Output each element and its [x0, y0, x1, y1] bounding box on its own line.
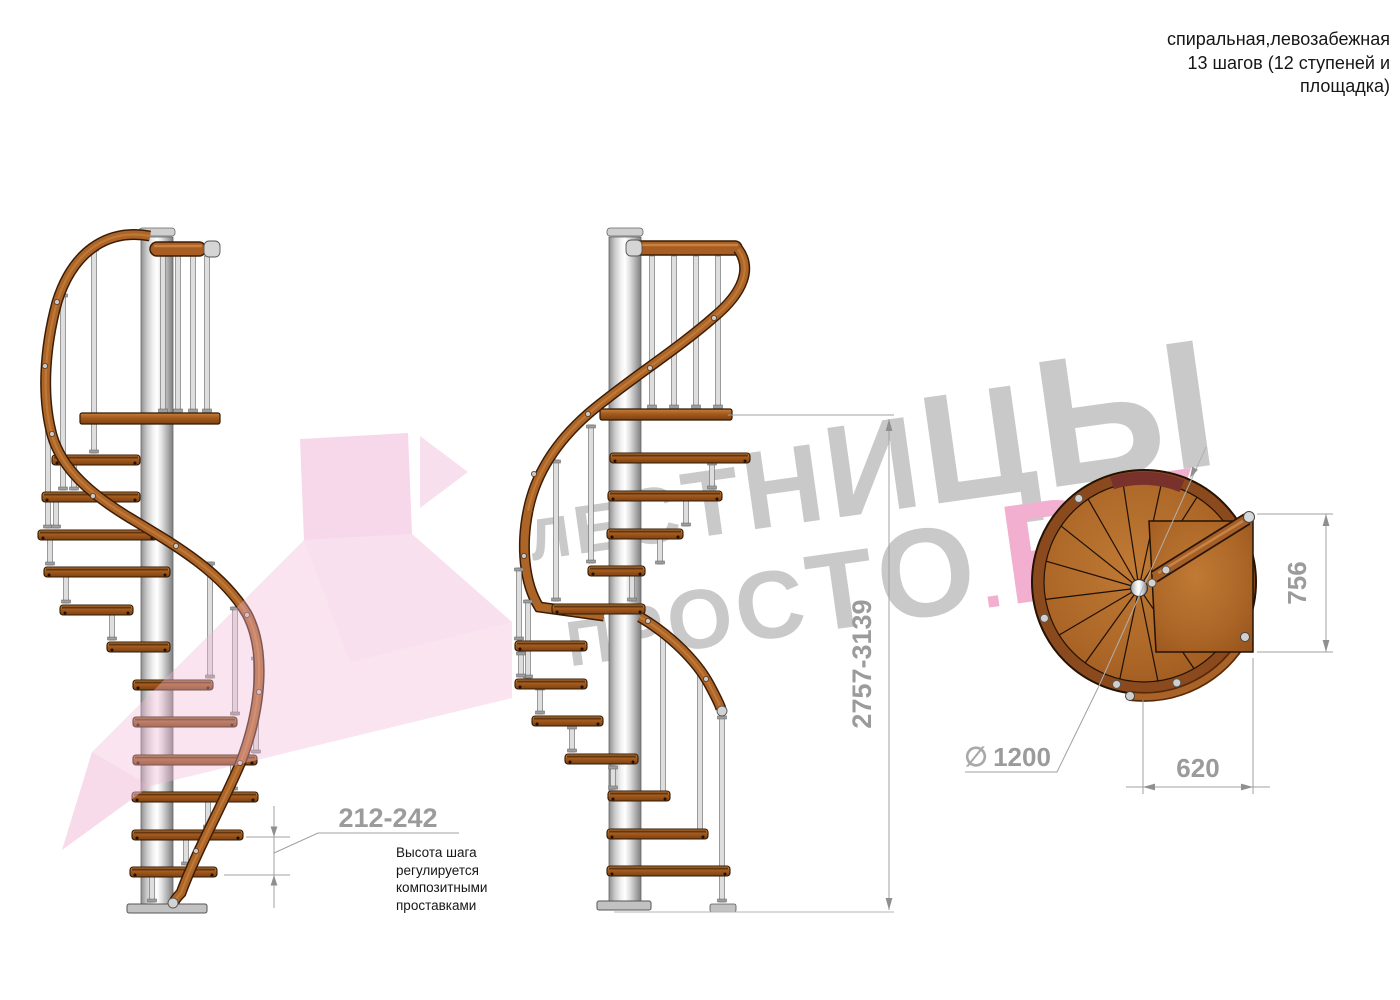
step-bolt	[134, 499, 137, 502]
step-bolt	[569, 761, 572, 764]
baluster	[684, 498, 689, 526]
baluster-flange	[587, 425, 596, 428]
step-bolt	[536, 723, 539, 726]
rail-connector	[173, 543, 178, 548]
step-bolt	[136, 799, 139, 802]
arrowhead	[1323, 514, 1330, 526]
step-bolt	[46, 499, 49, 502]
baluster-flange	[46, 562, 55, 565]
handrail-end-cap	[168, 898, 178, 908]
baluster-flange	[517, 652, 526, 655]
step-bolt	[556, 611, 559, 614]
step-bolt	[48, 574, 51, 577]
step-bolt	[677, 536, 680, 539]
baluster-flange	[70, 487, 79, 490]
step-bolt	[64, 612, 67, 615]
rail-connector	[711, 315, 716, 320]
baluster-flange	[44, 525, 53, 528]
handrail-end-cap	[717, 706, 727, 716]
step-bolt	[592, 573, 595, 576]
rail-connector	[193, 848, 198, 853]
title-line: спиральная,левозабежная	[1167, 28, 1390, 52]
note-line: регулируется	[396, 862, 487, 880]
step-bolt	[612, 498, 615, 501]
handrail-outline	[640, 617, 721, 709]
step-bolt	[56, 462, 59, 465]
step-bolt	[632, 761, 635, 764]
baluster-flange	[718, 899, 727, 902]
arrowhead	[886, 898, 893, 910]
arrowhead	[1323, 640, 1330, 652]
baluster	[570, 726, 575, 752]
rail-connector	[585, 411, 590, 416]
platform-step	[600, 409, 732, 420]
rail-connector	[42, 363, 47, 368]
baluster-flange	[568, 749, 577, 752]
baluster	[538, 687, 543, 714]
handrail-end-cap	[204, 241, 220, 257]
baluster-flange	[609, 766, 618, 769]
title-line: площадка)	[1167, 75, 1390, 99]
platform-handrail	[630, 241, 742, 255]
railing-baluster	[672, 256, 677, 409]
baluster	[517, 568, 522, 640]
baluster	[710, 462, 715, 489]
handrail-sleeve	[1162, 566, 1170, 574]
step-bolt	[134, 874, 137, 877]
step-bolt	[137, 687, 140, 690]
baluster-flange	[552, 598, 561, 601]
step-bolt	[744, 460, 747, 463]
baluster-flange	[515, 637, 524, 640]
step-bolt	[111, 649, 114, 652]
baluster	[661, 632, 666, 797]
rim-baluster-dot	[1113, 680, 1121, 688]
step-bolt	[597, 723, 600, 726]
baluster	[554, 460, 559, 601]
baluster-flange	[52, 525, 61, 528]
baluster	[698, 667, 703, 835]
baluster	[526, 600, 531, 678]
note-line: Высота шага	[396, 844, 487, 862]
baluster-flange	[708, 486, 717, 489]
step-bolt	[611, 536, 614, 539]
step-bolt	[164, 574, 167, 577]
platform-step	[80, 413, 220, 424]
railing-baluster	[161, 256, 166, 413]
step-bolt	[519, 686, 522, 689]
step-bolt	[639, 573, 642, 576]
baluster-flange	[62, 600, 71, 603]
step-bolt	[611, 873, 614, 876]
step-bolt	[716, 498, 719, 501]
rail-connector	[49, 431, 54, 436]
arrowhead	[886, 419, 893, 431]
baluster-joint	[1126, 692, 1135, 701]
baluster-flange	[718, 716, 727, 719]
baluster-flange	[524, 600, 533, 603]
step-bolt	[664, 798, 667, 801]
left-staircase-view	[38, 228, 262, 913]
step-bolt	[164, 649, 167, 652]
baluster-flange	[587, 560, 596, 563]
arrowhead	[1143, 784, 1155, 791]
baluster-flange	[536, 711, 545, 714]
step-bolt	[134, 462, 137, 465]
step-bolt	[519, 648, 522, 651]
baluster-flange	[515, 568, 524, 571]
middle-staircase-view	[515, 228, 751, 912]
base-plate	[127, 904, 207, 913]
platform-handrail	[150, 242, 206, 256]
baluster	[611, 766, 616, 789]
step-bolt	[724, 873, 727, 876]
rail-connector	[647, 365, 652, 370]
title-line: 13 шагов (12 ступеней и	[1167, 52, 1390, 76]
step-bolt	[581, 648, 584, 651]
pole-bracket	[1148, 579, 1156, 587]
rail-connector	[90, 493, 95, 498]
step-bolt	[211, 874, 214, 877]
railing-baluster	[716, 256, 721, 409]
arrowhead	[271, 875, 278, 886]
step-bolt	[612, 798, 615, 801]
base-plate	[597, 901, 651, 910]
railing-baluster	[176, 256, 181, 413]
rail-connector	[703, 676, 708, 681]
baluster	[519, 652, 524, 677]
step-bolt	[42, 537, 45, 540]
handrail-end-cap	[1244, 512, 1255, 523]
step-height-label: 212-242	[338, 803, 437, 833]
rail-connector	[531, 471, 536, 476]
step-bolt	[702, 836, 705, 839]
baluster-flange	[59, 487, 68, 490]
railing-baluster	[191, 256, 196, 413]
note-line: проставками	[396, 897, 487, 915]
baluster-flange	[148, 899, 157, 902]
drawing-title: спиральная,левозабежная 13 шагов (12 сту…	[1167, 28, 1390, 99]
handrail-end-cap	[626, 240, 642, 256]
baluster-flange	[682, 523, 691, 526]
baluster-joint	[1241, 633, 1250, 642]
rim-baluster-dot	[1173, 679, 1181, 687]
step-bolt	[581, 686, 584, 689]
drawing-canvas: ЛЕСТНИЦЫ ПРОСТО.РУ	[0, 0, 1400, 1000]
baluster	[589, 425, 594, 563]
platform-depth-label: 756	[1282, 561, 1312, 604]
diameter-symbol: ∅	[964, 742, 988, 772]
diameter-label: 1200	[993, 742, 1051, 772]
step-bolt	[611, 836, 614, 839]
baluster-flange	[108, 637, 117, 640]
rail-connector	[645, 618, 650, 623]
staircase-drawing: 2757-3139 212-242 756 620	[0, 0, 1400, 1000]
step-bolt	[251, 762, 254, 765]
step-bolt	[639, 611, 642, 614]
step-bolt	[252, 799, 255, 802]
baluster-flange	[609, 786, 618, 789]
step-height-note: Высота шага регулируется композитными пр…	[396, 844, 487, 914]
baluster-flange	[517, 674, 526, 677]
baluster-flange	[628, 598, 637, 601]
baluster-foot	[710, 904, 736, 912]
railing-baluster	[205, 256, 210, 413]
arrowhead	[1241, 784, 1253, 791]
arrowhead	[271, 827, 278, 838]
step-bolt	[136, 837, 139, 840]
rim-baluster-dot	[1075, 494, 1083, 502]
rail-connector	[54, 299, 59, 304]
step-bolt	[237, 837, 240, 840]
baluster-flange	[656, 561, 665, 564]
step-bolt	[127, 612, 130, 615]
total-height-label: 2757-3139	[847, 599, 877, 728]
rail-connector	[521, 553, 526, 558]
railing-baluster	[650, 256, 655, 409]
note-line: композитными	[396, 879, 487, 897]
baluster-flange	[90, 450, 99, 453]
pole-cap	[607, 228, 643, 236]
rim-baluster-dot	[1040, 614, 1048, 622]
platform-width-label: 620	[1176, 753, 1219, 783]
step-bolt	[614, 460, 617, 463]
